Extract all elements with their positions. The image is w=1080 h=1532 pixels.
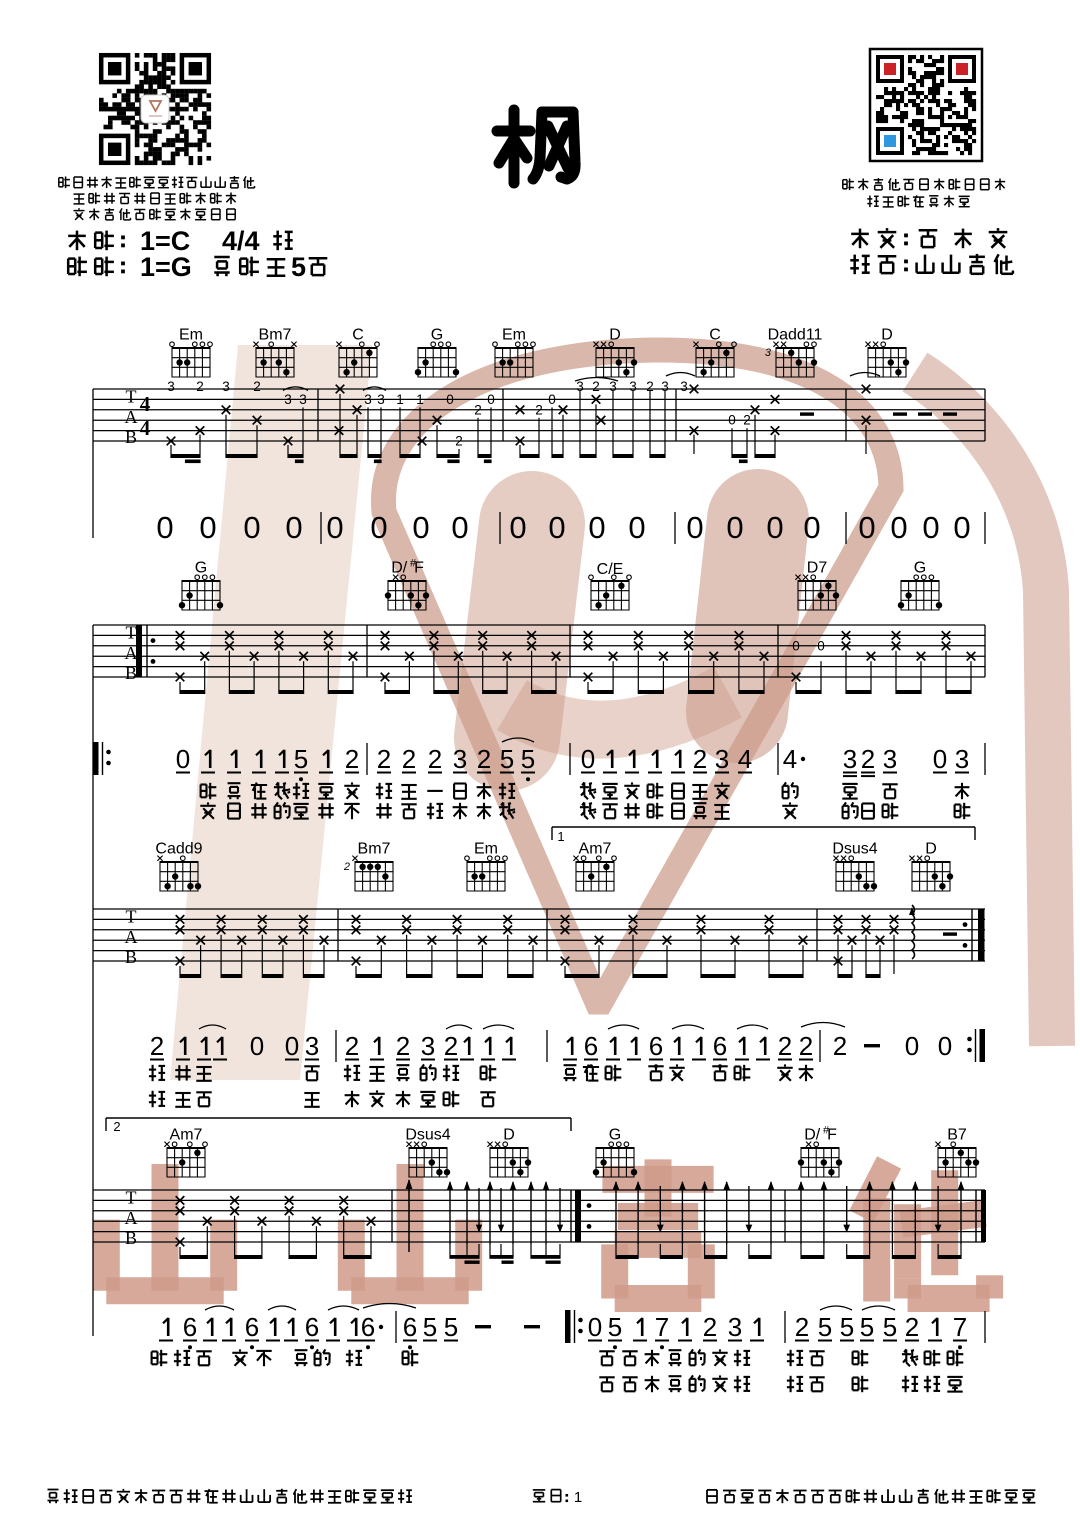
svg-text:B7: B7 [947, 1127, 967, 1144]
svg-text:1=G: 1=G [140, 252, 192, 282]
svg-text:2: 2 [833, 1031, 847, 1061]
svg-text:C/E: C/E [597, 561, 624, 578]
svg-text:0: 0 [803, 510, 820, 545]
svg-text:0: 0 [243, 510, 260, 545]
svg-text:6: 6 [584, 1031, 598, 1061]
svg-text:4: 4 [140, 416, 151, 440]
svg-text:3: 3 [843, 744, 857, 774]
svg-text:3: 3 [299, 392, 307, 407]
svg-text:T: T [126, 387, 137, 407]
svg-text:5: 5 [608, 1312, 622, 1342]
svg-text:3: 3 [715, 744, 729, 774]
svg-text:0: 0 [548, 510, 565, 545]
svg-text:0: 0 [588, 510, 605, 545]
svg-text:0: 0 [890, 510, 907, 545]
svg-text:2: 2 [113, 1119, 120, 1134]
svg-text:4: 4 [783, 744, 797, 774]
svg-text:B: B [125, 663, 137, 683]
svg-text:Em: Em [179, 327, 203, 344]
svg-text:T: T [126, 623, 137, 643]
svg-text:Am7: Am7 [579, 841, 612, 858]
svg-text:0: 0 [285, 1031, 299, 1061]
svg-text:C: C [709, 327, 721, 344]
svg-text:0: 0 [509, 510, 526, 545]
svg-text:0: 0 [326, 510, 343, 545]
svg-text:D: D [609, 327, 621, 344]
svg-text:D: D [804, 1127, 816, 1144]
svg-text:G: G [609, 1127, 621, 1144]
svg-text:Cadd9: Cadd9 [155, 841, 202, 858]
svg-text:Bm7: Bm7 [358, 841, 391, 858]
svg-text:3: 3 [284, 392, 292, 407]
svg-text:2: 2 [345, 744, 359, 774]
svg-text:2: 2 [535, 402, 543, 417]
svg-text:0: 0 [548, 392, 556, 407]
svg-text:2: 2 [795, 1312, 809, 1342]
svg-text:3: 3 [305, 1031, 319, 1061]
svg-text:0: 0 [285, 510, 302, 545]
svg-text:4/4: 4/4 [222, 226, 260, 256]
svg-text:0: 0 [581, 744, 595, 774]
svg-text:2: 2 [253, 379, 261, 394]
svg-text:5: 5 [294, 744, 308, 774]
svg-text:7: 7 [953, 1312, 967, 1342]
svg-text:6: 6 [183, 1312, 197, 1342]
svg-text:4: 4 [738, 744, 752, 774]
svg-text:0: 0 [628, 510, 645, 545]
svg-text:3: 3 [364, 392, 372, 407]
svg-text:2: 2 [428, 744, 442, 774]
svg-text:0: 0 [766, 510, 783, 545]
svg-text:0: 0 [792, 638, 800, 653]
svg-text:0: 0 [938, 1031, 952, 1061]
svg-text:6: 6 [305, 1312, 319, 1342]
svg-text:3: 3 [728, 1312, 742, 1342]
svg-text:3: 3 [765, 347, 772, 359]
svg-text:F: F [414, 560, 424, 577]
svg-text:7: 7 [655, 1312, 669, 1342]
svg-text:0: 0 [176, 744, 190, 774]
svg-text:2: 2 [778, 1031, 792, 1061]
svg-text:3: 3 [377, 392, 385, 407]
svg-text:0: 0 [726, 510, 743, 545]
svg-text:A: A [125, 407, 138, 427]
svg-text:B: B [125, 1228, 137, 1248]
svg-text:Bm7: Bm7 [259, 327, 292, 344]
svg-text:Dsus4: Dsus4 [405, 1127, 450, 1144]
svg-text:/: / [816, 1127, 821, 1144]
svg-text:6: 6 [403, 1312, 417, 1342]
svg-text:2: 2 [905, 1312, 919, 1342]
svg-text:6: 6 [361, 1312, 375, 1342]
svg-text:0: 0 [922, 510, 939, 545]
svg-text:0: 0 [412, 510, 429, 545]
svg-text:0: 0 [446, 392, 454, 407]
svg-text:2: 2 [474, 402, 482, 417]
svg-text:1: 1 [557, 829, 564, 844]
svg-text:3: 3 [680, 379, 688, 394]
svg-text:0: 0 [199, 510, 216, 545]
svg-text:0: 0 [370, 510, 387, 545]
svg-text:T: T [126, 907, 137, 927]
svg-text:2: 2 [799, 1031, 813, 1061]
svg-text:0: 0 [933, 744, 947, 774]
svg-text:0: 0 [588, 1312, 602, 1342]
svg-text:4: 4 [140, 392, 151, 416]
svg-text:2: 2 [703, 1312, 717, 1342]
svg-text:2: 2 [455, 434, 463, 449]
svg-text:5: 5 [521, 744, 535, 774]
svg-text:2: 2 [377, 744, 391, 774]
svg-text:2: 2 [196, 379, 204, 394]
svg-text:B: B [125, 947, 137, 967]
svg-text:D7: D7 [807, 560, 828, 577]
svg-text:3: 3 [421, 1031, 435, 1061]
svg-text:5: 5 [444, 1312, 458, 1342]
svg-text:2: 2 [861, 744, 875, 774]
svg-text:A: A [125, 643, 138, 663]
svg-text:D: D [925, 841, 937, 858]
svg-text:C: C [352, 327, 364, 344]
svg-text:2: 2 [343, 861, 350, 873]
svg-text:0: 0 [817, 638, 825, 653]
svg-text:G: G [195, 560, 207, 577]
svg-text:0: 0 [858, 510, 875, 545]
svg-text:2: 2 [345, 1031, 359, 1061]
svg-text:3: 3 [453, 744, 467, 774]
svg-text:3: 3 [222, 379, 230, 394]
svg-text:0: 0 [250, 1031, 264, 1061]
svg-text:0: 0 [451, 510, 468, 545]
svg-text:6: 6 [713, 1031, 727, 1061]
svg-text:5: 5 [818, 1312, 832, 1342]
svg-text:G: G [914, 560, 926, 577]
svg-text:0: 0 [487, 392, 495, 407]
svg-text:F: F [827, 1127, 837, 1144]
svg-text:G: G [431, 327, 443, 344]
svg-text:2: 2 [743, 413, 751, 428]
svg-text:0: 0 [156, 510, 173, 545]
svg-text:A: A [125, 927, 138, 947]
svg-text:2: 2 [693, 744, 707, 774]
svg-text:0: 0 [953, 510, 970, 545]
svg-text:1: 1 [574, 1489, 582, 1506]
svg-text:D: D [391, 560, 403, 577]
svg-text:5: 5 [860, 1312, 874, 1342]
svg-text:0: 0 [728, 413, 736, 428]
svg-text:2: 2 [592, 379, 600, 394]
svg-text:2: 2 [444, 1031, 458, 1061]
svg-text:Em: Em [474, 841, 498, 858]
svg-text:5: 5 [883, 1312, 897, 1342]
svg-text:B: B [125, 427, 137, 447]
svg-text:0: 0 [905, 1031, 919, 1061]
svg-text:6: 6 [649, 1031, 663, 1061]
svg-text:3: 3 [167, 379, 175, 394]
svg-text:0: 0 [686, 510, 703, 545]
svg-text:6: 6 [245, 1312, 259, 1342]
svg-text:Dsus4: Dsus4 [832, 841, 877, 858]
svg-text:D: D [503, 1127, 515, 1144]
svg-text:3: 3 [883, 744, 897, 774]
svg-text:5: 5 [840, 1312, 854, 1342]
svg-text:2: 2 [150, 1031, 164, 1061]
svg-text:T: T [126, 1188, 137, 1208]
svg-text:D: D [881, 327, 893, 344]
svg-text:5: 5 [291, 252, 306, 282]
svg-text:1: 1 [416, 392, 424, 407]
svg-text:2: 2 [477, 744, 491, 774]
svg-text:2: 2 [396, 1031, 410, 1061]
svg-text:Am7: Am7 [170, 1127, 203, 1144]
svg-text:5: 5 [500, 744, 514, 774]
svg-text:5: 5 [423, 1312, 437, 1342]
svg-text:2: 2 [402, 744, 416, 774]
svg-text:A: A [125, 1208, 138, 1228]
svg-text:Em: Em [502, 327, 526, 344]
svg-text:Dadd11: Dadd11 [768, 327, 823, 344]
svg-text:/: / [403, 560, 408, 577]
svg-text:3: 3 [955, 744, 969, 774]
svg-text:1: 1 [396, 392, 404, 407]
